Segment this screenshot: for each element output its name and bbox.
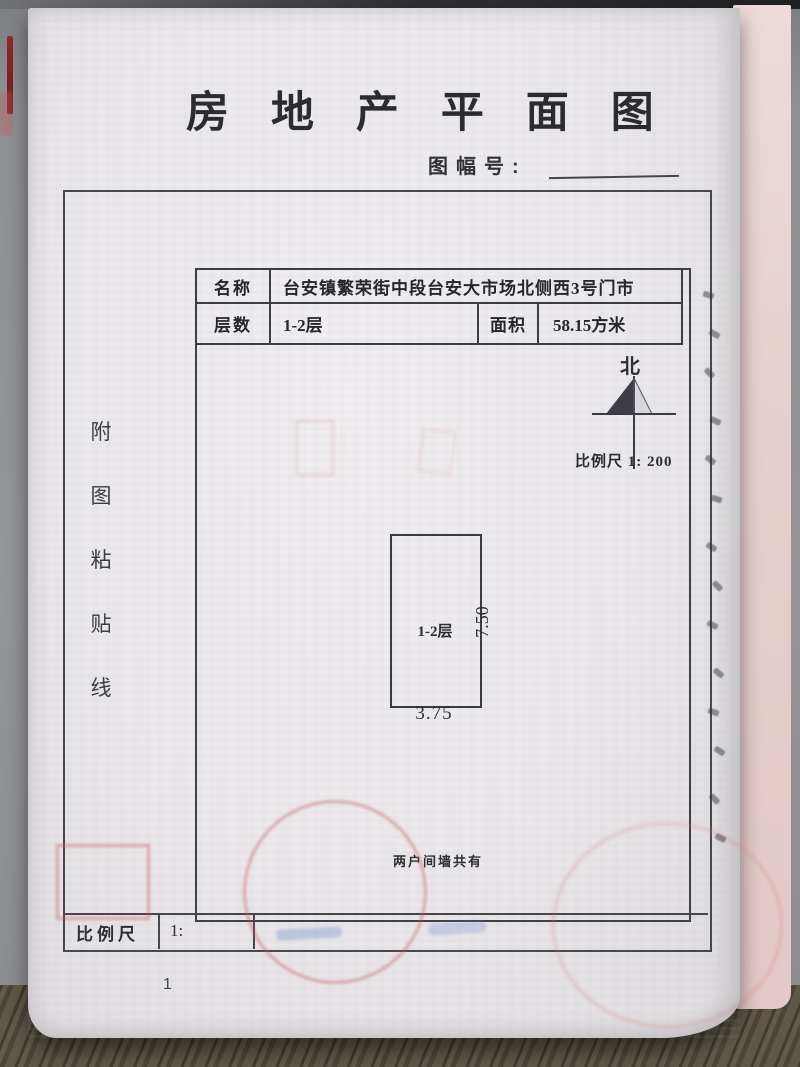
red-square-stamp-ghost: [56, 844, 150, 920]
dimension-height: 7.50: [472, 594, 492, 650]
red-ink-bleed-mark: [417, 428, 457, 476]
red-ink-bleed-mark: [296, 420, 334, 476]
edge-mark: [711, 580, 723, 592]
edge-mark: [712, 667, 724, 679]
sheet-number-blank-line: [549, 175, 679, 179]
page-title: 房 地 产 平 面 图: [186, 78, 572, 140]
red-ink-edge-mark: [0, 92, 13, 136]
floors-label-cell: 层数: [197, 304, 271, 343]
paste-line-char: 粘: [82, 544, 120, 574]
paste-line-char: 线: [82, 672, 120, 702]
name-label-cell: 名称: [197, 270, 271, 302]
edge-mark: [713, 745, 725, 756]
scale-annotation: 比例尺 1: 200: [575, 450, 673, 471]
area-value-cell: 58.15方米: [539, 304, 681, 343]
footer-cell-divider: [158, 913, 160, 949]
paste-line-char: 附: [82, 416, 120, 446]
floors-value-cell: 1-2层: [271, 304, 479, 343]
document-photo: 房 地 产 平 面 图 图幅号: 附 图 粘 贴 线 名称 台安镇繁荣街中段台安…: [0, 0, 800, 1067]
table-row-name: 名称 台安镇繁荣街中段台安大市场北侧西3号门市: [197, 270, 681, 302]
sheet-number-label: 图幅号:: [428, 150, 527, 179]
attachment-paste-line-label: 附 图 粘 贴 线: [82, 416, 120, 702]
red-round-stamp-ghost: [243, 800, 427, 984]
table-row-floors-area: 层数 1-2层 面积 58.15方米: [197, 302, 681, 343]
area-label-cell: 面积: [479, 304, 539, 343]
red-round-stamp-ghost-faint: [552, 822, 783, 1028]
name-value-cell: 台安镇繁荣街中段台安大市场北侧西3号门市: [271, 270, 681, 302]
paste-line-char: 图: [82, 480, 120, 510]
dimension-width: 3.75: [399, 703, 469, 725]
floor-plan-unit-label: 1-2层: [390, 620, 480, 641]
page-number: 1: [163, 976, 172, 994]
property-info-table: 名称 台安镇繁荣街中段台安大市场北侧西3号门市 层数 1-2层 面积 58.15…: [195, 268, 683, 345]
footer-scale-label: 比例尺: [76, 920, 139, 945]
document-content: 房 地 产 平 面 图 图幅号: 附 图 粘 贴 线 名称 台安镇繁荣街中段台安…: [0, 0, 800, 1067]
footer-scale-value-prefix: 1:: [170, 921, 183, 941]
paste-line-char: 贴: [82, 608, 120, 638]
